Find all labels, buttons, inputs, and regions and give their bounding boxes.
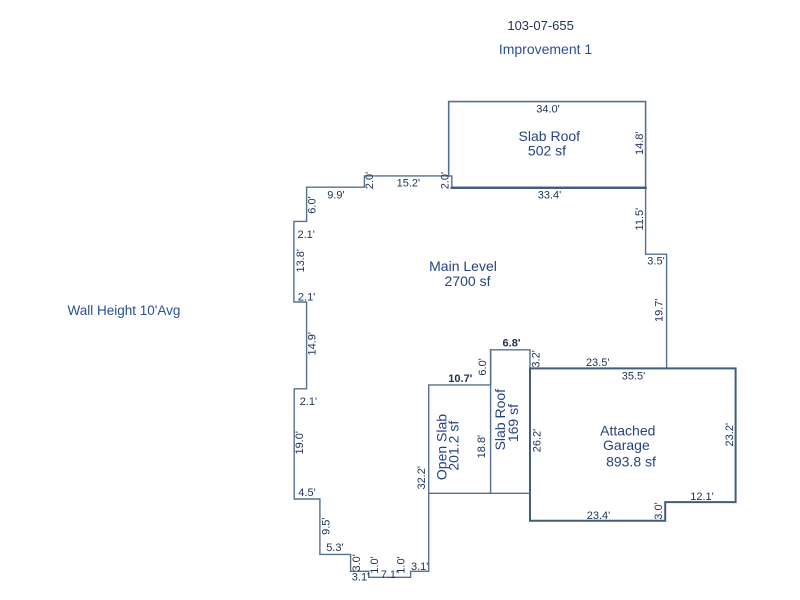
svg-text:11.5': 11.5'	[634, 208, 646, 231]
svg-text:5.3': 5.3'	[326, 542, 343, 554]
svg-text:103-07-655: 103-07-655	[507, 18, 574, 33]
svg-text:12.1': 12.1'	[690, 491, 714, 503]
svg-text:3.0': 3.0'	[351, 554, 363, 571]
svg-text:3.5': 3.5'	[647, 256, 664, 268]
svg-text:2.1': 2.1'	[297, 229, 314, 241]
svg-text:3.2': 3.2'	[530, 350, 542, 367]
svg-text:19.7': 19.7'	[654, 299, 666, 323]
svg-text:Main Level: Main Level	[429, 258, 497, 274]
svg-text:893.8 sf: 893.8 sf	[606, 453, 656, 469]
svg-text:32.2': 32.2'	[416, 466, 428, 490]
svg-text:23.5': 23.5'	[586, 357, 610, 369]
svg-text:2.0': 2.0'	[440, 172, 452, 189]
svg-text:10.7': 10.7'	[448, 373, 472, 385]
svg-text:3.0': 3.0'	[653, 502, 665, 519]
svg-text:2.1': 2.1'	[298, 291, 315, 303]
svg-text:14.9': 14.9'	[307, 332, 319, 356]
svg-text:3.1': 3.1'	[352, 571, 369, 583]
svg-text:35.5': 35.5'	[622, 371, 646, 383]
svg-text:169 sf: 169 sf	[505, 404, 521, 442]
svg-text:6.8': 6.8'	[503, 338, 521, 350]
svg-text:Garage: Garage	[603, 437, 650, 453]
svg-text:2.0': 2.0'	[364, 172, 376, 189]
svg-text:502 sf: 502 sf	[528, 143, 566, 159]
svg-text:4.5': 4.5'	[298, 487, 315, 499]
svg-text:6.0': 6.0'	[477, 358, 489, 375]
svg-text:Improvement 1: Improvement 1	[499, 41, 593, 57]
svg-text:6.0': 6.0'	[306, 196, 318, 213]
svg-text:Wall Height 10'Avg: Wall Height 10'Avg	[68, 303, 181, 318]
svg-text:33.4': 33.4'	[538, 190, 562, 202]
svg-text:34.0': 34.0'	[536, 103, 560, 115]
svg-text:1.0': 1.0'	[369, 556, 381, 573]
svg-text:23.2': 23.2'	[724, 423, 736, 447]
svg-text:19.0': 19.0'	[294, 431, 306, 455]
svg-text:15.2': 15.2'	[397, 178, 421, 190]
svg-text:201.2 sf: 201.2 sf	[446, 421, 462, 471]
svg-text:2.1': 2.1'	[300, 396, 317, 408]
svg-text:18.8': 18.8'	[476, 435, 488, 459]
svg-text:3.1': 3.1'	[411, 561, 428, 573]
svg-text:13.8': 13.8'	[295, 249, 307, 273]
svg-text:2700 sf: 2700 sf	[445, 273, 491, 289]
svg-text:23.4': 23.4'	[587, 510, 611, 522]
svg-text:9.9': 9.9'	[327, 189, 344, 201]
svg-text:14.8': 14.8'	[634, 132, 646, 156]
svg-text:26.2': 26.2'	[531, 429, 543, 453]
svg-text:1.0': 1.0'	[396, 556, 408, 573]
svg-text:9.5': 9.5'	[321, 517, 333, 534]
